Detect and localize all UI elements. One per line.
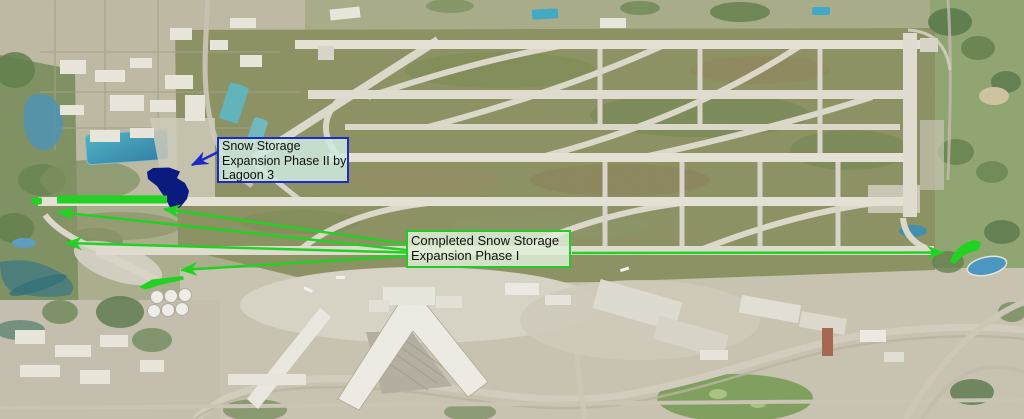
phase1-area-east-crescent xyxy=(950,240,980,264)
airport-aerial-map: Snow Storage Expansion Phase II by Lagoo… xyxy=(0,0,1024,419)
phase1-label-box: Completed Snow Storage Expansion Phase I xyxy=(406,230,571,268)
phase1-area-west-strip xyxy=(57,196,167,204)
phase2-label-box: Snow Storage Expansion Phase II by Lagoo… xyxy=(217,137,349,183)
phase1-label-line1: Completed Snow Storage xyxy=(411,233,566,248)
phase2-label-line2: Expansion Phase II by xyxy=(222,154,344,169)
arrow-to-phase2-area xyxy=(192,152,218,165)
arrow-to-east-crescent xyxy=(572,253,943,254)
phase1-area-west-tip xyxy=(32,198,43,205)
annotation-overlay xyxy=(0,0,1024,419)
phase2-label-line3: Lagoon 3 xyxy=(222,168,344,183)
arrow-to-southwest-area xyxy=(181,256,406,270)
phase1-area-southwest xyxy=(139,276,184,290)
phase1-label-line2: Expansion Phase I xyxy=(411,248,566,263)
phase2-label-line1: Snow Storage xyxy=(222,139,344,154)
